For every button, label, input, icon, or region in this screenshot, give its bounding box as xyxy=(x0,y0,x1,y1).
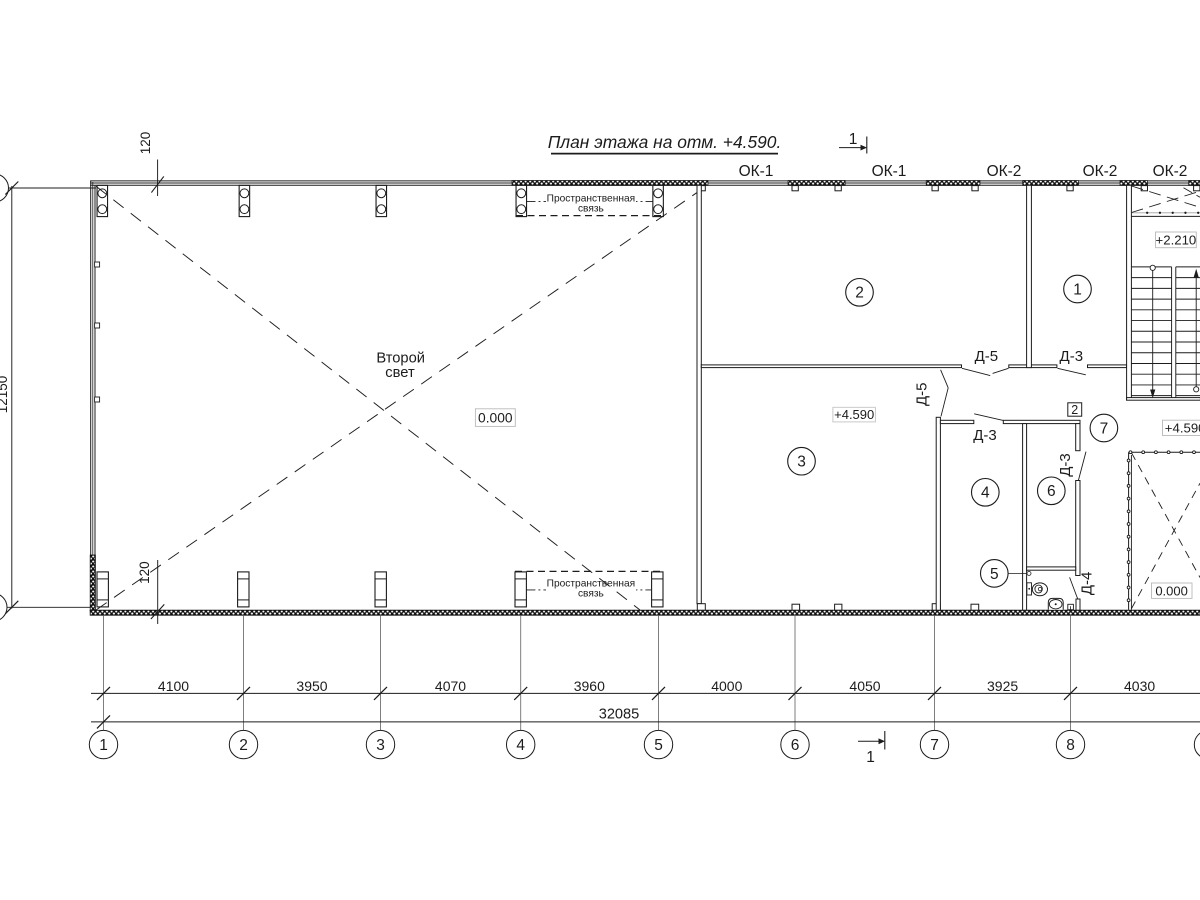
svg-text:1: 1 xyxy=(849,131,858,148)
svg-text:2: 2 xyxy=(1071,403,1078,417)
svg-text:6: 6 xyxy=(791,737,800,754)
svg-text:Д-3: Д-3 xyxy=(1060,348,1084,365)
svg-text:1: 1 xyxy=(1073,281,1082,298)
svg-text:3960: 3960 xyxy=(574,678,605,694)
svg-text:ОК-1: ОК-1 xyxy=(739,163,774,180)
svg-text:+4.590: +4.590 xyxy=(1165,421,1200,436)
svg-text:0.000: 0.000 xyxy=(1155,584,1188,599)
svg-text:2: 2 xyxy=(239,737,248,754)
svg-text:5: 5 xyxy=(654,737,663,754)
svg-text:4000: 4000 xyxy=(711,678,742,694)
svg-text:Д-5: Д-5 xyxy=(913,383,930,407)
svg-text:ОК-1: ОК-1 xyxy=(872,163,907,180)
svg-text:ОК-2: ОК-2 xyxy=(987,163,1022,180)
svg-text:4: 4 xyxy=(516,737,525,754)
svg-text:Д-3: Д-3 xyxy=(973,427,997,444)
svg-text:свет: свет xyxy=(385,365,415,381)
svg-text:+2.210: +2.210 xyxy=(1156,232,1197,247)
svg-text:3: 3 xyxy=(376,737,385,754)
svg-text:7: 7 xyxy=(930,737,939,754)
svg-text:Д-3: Д-3 xyxy=(1057,453,1074,477)
svg-text:+4.590: +4.590 xyxy=(834,407,874,422)
svg-text:4030: 4030 xyxy=(1124,678,1155,694)
svg-text:6: 6 xyxy=(1047,483,1056,500)
svg-text:ОК-2: ОК-2 xyxy=(1083,163,1118,180)
svg-text:5: 5 xyxy=(990,566,999,583)
svg-text:8: 8 xyxy=(1066,737,1075,754)
svg-text:7: 7 xyxy=(1100,420,1109,437)
svg-text:4050: 4050 xyxy=(849,678,880,694)
svg-text:4100: 4100 xyxy=(158,678,189,694)
svg-text:120: 120 xyxy=(137,561,152,584)
svg-text:связь: связь xyxy=(578,588,604,599)
svg-text:ОК-2: ОК-2 xyxy=(1153,163,1188,180)
svg-text:3925: 3925 xyxy=(987,678,1018,694)
svg-text:План этажа на отм. +4.590.: План этажа на отм. +4.590. xyxy=(548,132,782,152)
svg-text:120: 120 xyxy=(138,132,153,155)
svg-text:Д-5: Д-5 xyxy=(975,348,999,365)
svg-text:12150: 12150 xyxy=(0,376,10,414)
svg-text:1: 1 xyxy=(866,749,875,766)
svg-text:4: 4 xyxy=(981,485,990,502)
svg-text:3: 3 xyxy=(797,454,806,471)
svg-text:0.000: 0.000 xyxy=(478,410,513,425)
svg-text:Д-4: Д-4 xyxy=(1078,572,1095,596)
svg-text:2: 2 xyxy=(855,285,864,302)
svg-text:связь: связь xyxy=(578,203,604,214)
svg-text:3950: 3950 xyxy=(296,678,327,694)
svg-text:4070: 4070 xyxy=(435,678,466,694)
svg-text:32085: 32085 xyxy=(599,707,640,723)
svg-text:1: 1 xyxy=(99,737,108,754)
